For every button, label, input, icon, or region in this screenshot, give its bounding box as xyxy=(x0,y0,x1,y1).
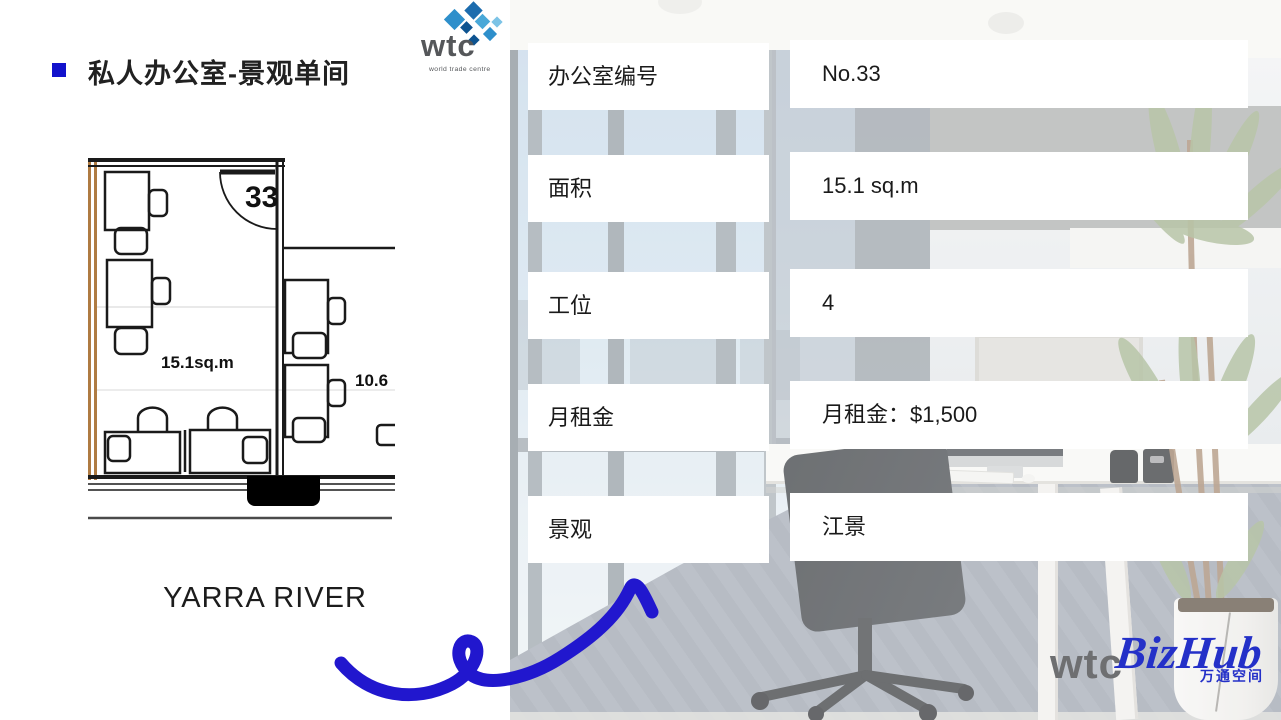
detail-value-workstations: 4 xyxy=(790,269,1248,337)
wtc-logo-text: wtc xyxy=(421,28,476,64)
blue-swirl-annotation xyxy=(330,565,675,715)
footer-bizhub-subtitle: 万通空间 xyxy=(1200,666,1264,686)
floor-plan: 33 15.1sq.m 10.6 xyxy=(85,150,395,625)
diamond-icon xyxy=(491,16,502,27)
wtc-logo-tagline: world trade centre xyxy=(429,66,491,73)
detail-label-view: 景观 xyxy=(528,496,769,563)
footer-wtc-text: wtc xyxy=(1050,640,1123,688)
detail-value-rent: 月租金：$1,500 xyxy=(790,381,1248,449)
detail-label-rent: 月租金 xyxy=(528,384,769,451)
plan-room-number: 33 xyxy=(245,181,278,214)
detail-label-workstations: 工位 xyxy=(528,272,769,339)
slide: 私人办公室-景观单间 wtc world trade centre xyxy=(0,0,1281,720)
diamond-icon xyxy=(483,27,497,41)
detail-value-office-number: No.33 xyxy=(790,40,1248,108)
detail-label-area: 面积 xyxy=(528,155,769,222)
plan-area-label: 15.1sq.m xyxy=(161,353,234,372)
title-bullet xyxy=(52,63,66,77)
plan-adjacent-area-label: 10.6 xyxy=(355,371,388,390)
detail-value-view: 江景 xyxy=(790,493,1248,561)
page-title: 私人办公室-景观单间 xyxy=(88,52,350,91)
detail-label-office-number: 办公室编号 xyxy=(528,43,769,110)
wtc-logo: wtc world trade centre xyxy=(405,0,510,96)
detail-value-area: 15.1 sq.m xyxy=(790,152,1248,220)
